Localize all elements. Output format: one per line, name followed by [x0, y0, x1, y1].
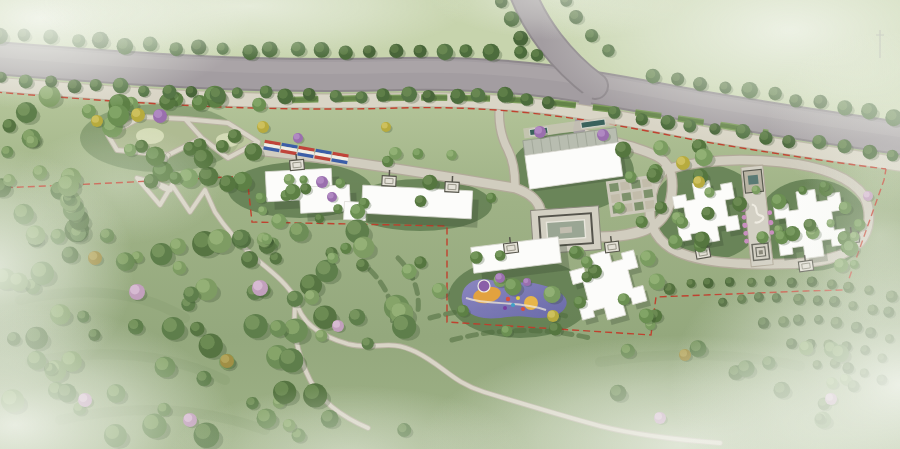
carousel-dome [478, 280, 490, 292]
site-plan-rendering [0, 0, 900, 449]
master-plan-canvas [0, 0, 900, 449]
